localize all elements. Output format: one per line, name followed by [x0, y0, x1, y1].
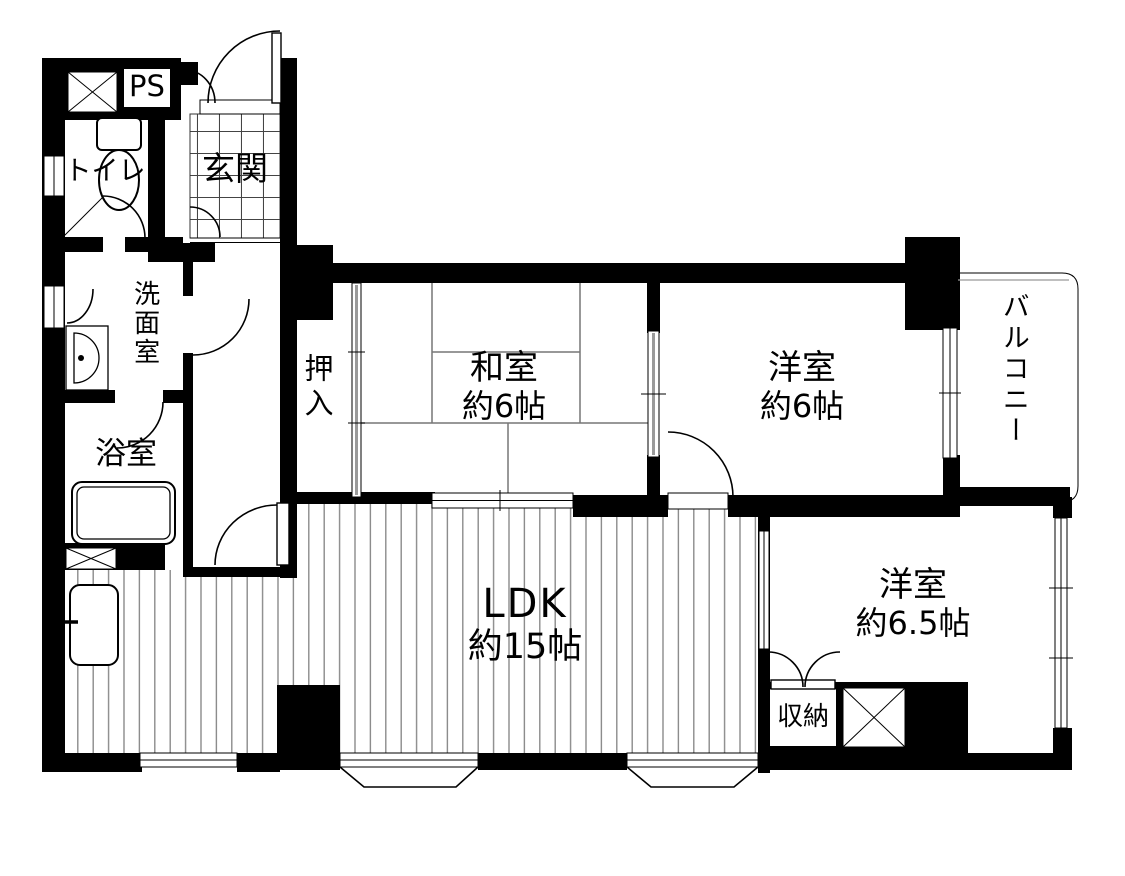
toilet-door-threshold: [103, 236, 125, 253]
washroom-door-threshold: [183, 296, 193, 353]
wall-western65-bottom: [763, 753, 1072, 770]
room-label-oshiire: 押入: [300, 353, 333, 423]
wall-corner-pillar: [905, 237, 960, 330]
duct-box-kitchen: [66, 548, 116, 569]
wall-hall-bottom: [188, 567, 280, 577]
room-label-japanese-room: 和室 約6帖: [404, 349, 604, 424]
room-label-ldk: LDK 約15帖: [420, 582, 630, 667]
wall-lower-block: [277, 685, 340, 770]
room-label-ps: PS: [123, 70, 171, 103]
room-label-western6: 洋室 約6帖: [702, 349, 902, 424]
entrance-step-line: [190, 238, 280, 243]
room-label-storage: 収納: [768, 703, 838, 733]
bay-window-right: [627, 753, 758, 787]
wall-western65-top: [770, 497, 1072, 506]
front-door: [185, 31, 281, 103]
wall-bottom-mid: [237, 753, 280, 772]
bathtub-fixture: [72, 482, 175, 544]
room-label-balcony: バルコニー: [997, 292, 1028, 447]
floor-plan-drawing: [0, 0, 1125, 876]
sliding-window-ldk-western65: [759, 531, 769, 649]
western6-door-arc: [668, 432, 733, 497]
bay-window-left: [340, 753, 478, 787]
window-kitchen-bottom: [140, 753, 237, 767]
front-door-threshold: [200, 100, 280, 114]
bathroom-door-threshold: [115, 389, 163, 404]
wall-japanese-room-top: [333, 263, 658, 283]
washroom-door-arc: [193, 299, 249, 355]
hall-ldk-door: [215, 503, 289, 565]
fusuma-oshiire: [348, 283, 365, 497]
window-western6-balcony: [939, 328, 961, 458]
wall-entrance-bottom: [148, 243, 215, 262]
wall-bay-divider: [478, 753, 627, 770]
wall-ldk-top-right: [573, 495, 668, 517]
sliding-door-japanese-western6: [641, 331, 666, 457]
wall-entrance-stub: [181, 62, 198, 85]
room-label-entrance: 玄関: [193, 150, 277, 188]
floor-plan: PS トイレ 玄関 洗面室 浴室 押入 和室 約6帖 洋室 約6帖 バルコニー …: [0, 0, 1125, 876]
wall-toilet-entrance: [148, 100, 165, 245]
room-label-ldk-name: LDK: [420, 582, 630, 628]
room-label-washroom: 洗面室: [129, 280, 159, 367]
room-label-japanese-room-name: 和室: [404, 349, 604, 388]
room-label-toilet: トイレ: [60, 157, 150, 188]
duct-box-western65: [843, 688, 905, 747]
wall-corner-block: [280, 245, 333, 320]
wall-japanese-western-lower: [647, 455, 660, 497]
wall-bottom-left: [42, 753, 142, 772]
sliding-door-japanese-ldk: [432, 490, 573, 511]
wall-western6-top: [658, 263, 908, 283]
room-label-western65-name: 洋室: [808, 566, 1018, 605]
western6-door-threshold: [668, 493, 728, 509]
wall-ldk-top-left: [292, 492, 435, 504]
room-label-western6-name: 洋室: [702, 349, 902, 388]
room-label-ldk-size: 約15帖: [420, 628, 630, 668]
room-label-western65-size: 約6.5帖: [808, 605, 1018, 641]
window-left-washroom: [44, 286, 93, 328]
washbasin-fixture: [66, 326, 108, 390]
room-label-japanese-room-size: 約6帖: [404, 388, 604, 424]
duct-box-top-left: [68, 72, 117, 112]
room-label-bathroom: 浴室: [84, 437, 168, 472]
room-label-western65: 洋室 約6.5帖: [808, 566, 1018, 641]
window-western65-right: [1049, 518, 1073, 728]
room-label-western6-size: 約6帖: [702, 388, 902, 424]
